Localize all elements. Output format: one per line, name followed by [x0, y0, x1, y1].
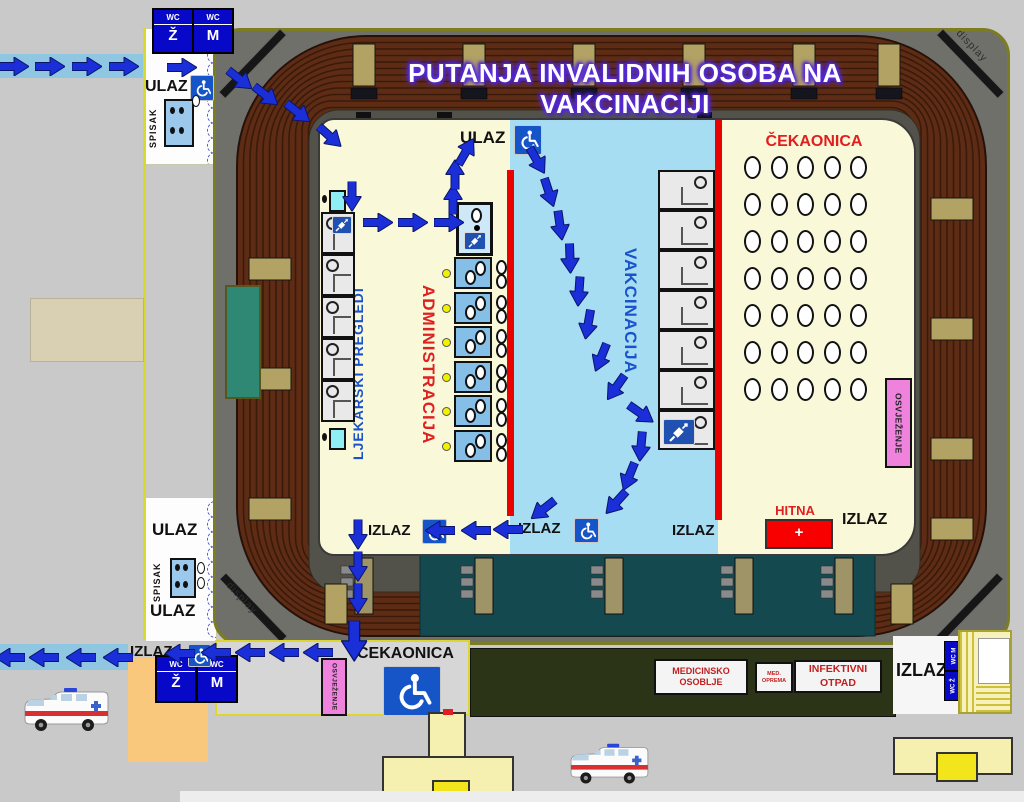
wheelchair-icon: [574, 518, 599, 543]
outside-structure: [30, 298, 144, 362]
wc-letter: Ž: [154, 28, 192, 43]
refreshment-label: OSVJEŽENJE: [331, 663, 338, 711]
wc-text: WC: [194, 14, 232, 25]
wc-text: WC: [951, 654, 957, 664]
waiting-seat: [824, 193, 841, 216]
waiting-seat: [824, 304, 841, 327]
admin-booth: [454, 326, 492, 358]
queue-dot: [442, 407, 451, 416]
visitor-seat: [496, 260, 507, 275]
desk-icon: [681, 187, 708, 205]
waiting-seat: [771, 304, 788, 327]
infectious-waste-box: INFEKTIVNI OTPAD: [794, 660, 882, 693]
wc-men-sign: WC M: [192, 8, 234, 54]
desk-icon: [681, 347, 708, 365]
waiting-room-label: ČEKAONICA: [357, 645, 454, 663]
waiting-seat: [824, 156, 841, 179]
chair-icon: [326, 301, 339, 314]
medical-staff-line2: OSOBLJE: [656, 677, 746, 688]
wc-letter: Ž: [157, 675, 195, 690]
vaccination-booth: [658, 370, 715, 410]
divider-line: [507, 170, 514, 516]
waiting-seat: [824, 341, 841, 364]
seat-oval: [465, 339, 476, 354]
emergency-station: +: [765, 519, 833, 549]
admin-booth: [454, 361, 492, 393]
refreshment-sign: OSVJEŽENJE: [885, 378, 912, 468]
waiting-seat: [744, 341, 761, 364]
administration-label: ADMINISTRACIJA: [418, 285, 438, 475]
wc-letter: M: [951, 648, 957, 653]
desk-icon: [333, 358, 352, 376]
entrance-label: ULAZ: [145, 78, 188, 96]
entry-corridor: [0, 54, 146, 78]
vaccination-booth: [658, 250, 715, 290]
disabled-vaccination-icon: [663, 419, 695, 445]
seat-oval: [197, 562, 205, 574]
wc-letter: M: [198, 675, 236, 690]
vaccination-booth: [658, 410, 715, 450]
waiting-seat: [850, 156, 867, 179]
desk-icon: [681, 227, 708, 245]
waiting-seat: [744, 378, 761, 401]
waiting-seat: [744, 267, 761, 290]
visitor-seat: [496, 274, 507, 289]
seat-oval: [475, 399, 486, 414]
medical-staff-line1: MEDICINSKO: [656, 666, 746, 677]
ambulance-icon: [20, 684, 112, 738]
visitor-seat: [496, 329, 507, 344]
waiting-seat: [850, 341, 867, 364]
equipment-line1: MED.: [757, 671, 791, 678]
exit-label: IZLAZ: [368, 522, 411, 539]
visitor-seat: [496, 309, 507, 324]
chair-icon: [326, 259, 339, 272]
road-strip: [180, 791, 1024, 802]
vaccination-booth: [658, 210, 715, 250]
queue-dot: [442, 338, 451, 347]
vaccination-path-diagram: WC Ž WC M ULAZ SPISAK ULAZ SPISAK ULAZ U…: [0, 0, 1024, 802]
vaccination-label: VAKCINACIJA: [620, 248, 640, 413]
list-label: SPISAK: [152, 556, 162, 602]
seat-oval: [322, 433, 327, 441]
queue-dot: [442, 442, 451, 451]
visitor-seat: [496, 295, 507, 310]
exit-label: IZLAZ: [130, 643, 173, 660]
waiting-seat: [744, 193, 761, 216]
ambulance-icon: [566, 740, 652, 790]
supply-box: [329, 190, 346, 212]
supply-box: [329, 428, 346, 450]
emergency-label: HITNA: [760, 503, 830, 518]
desk-icon: [681, 267, 708, 285]
visitor-seat: [496, 433, 507, 448]
visitor-seat: [496, 343, 507, 358]
vaccination-booth: [658, 290, 715, 330]
waiting-seat: [850, 193, 867, 216]
medical-exam-booth: [321, 296, 355, 338]
exit-label: IZLAZ: [842, 511, 887, 529]
medical-exam-booth: [321, 380, 355, 422]
waiting-seat: [797, 193, 814, 216]
seat-oval: [322, 195, 327, 203]
arena-floor: ULAZ ČEKAONICA LJEKARSKI PREGLEDI ADMINI…: [318, 118, 916, 556]
waiting-seat: [771, 267, 788, 290]
waiting-seat: [744, 230, 761, 253]
wheelchair-icon: [514, 125, 542, 155]
chair-icon: [326, 385, 339, 398]
admin-head-booth: [456, 202, 493, 256]
exit-corridor: [0, 644, 128, 670]
admin-booth: [454, 292, 492, 324]
wc-letter: Ž: [951, 678, 957, 682]
floor-entrance-label: ULAZ: [460, 128, 505, 148]
waiting-seat: [797, 267, 814, 290]
waiting-seat: [771, 230, 788, 253]
seat-oval: [465, 374, 476, 389]
desk-icon: [333, 274, 352, 292]
refreshment-label: OSVJEŽENJE: [894, 393, 904, 454]
divider-line: [715, 120, 722, 520]
vaccination-booth: [658, 330, 715, 370]
seat-oval: [475, 296, 486, 311]
admin-booth: [454, 257, 492, 289]
admin-booth: [454, 430, 492, 462]
waiting-seat: [824, 267, 841, 290]
doctor-icon: [332, 216, 352, 234]
entrance-label: ULAZ: [152, 520, 197, 540]
infectious-waste-label: INFEKTIVNI OTPAD: [796, 663, 880, 689]
waiting-seat: [771, 341, 788, 364]
exit-label: IZLAZ: [896, 660, 947, 681]
seat-oval: [465, 443, 476, 458]
waiting-seat: [744, 304, 761, 327]
waiting-seat: [850, 304, 867, 327]
exit-label: IZLAZ: [518, 520, 561, 537]
list-label: SPISAK: [148, 96, 158, 148]
waiting-seat: [824, 230, 841, 253]
vaccination-icon: [464, 232, 486, 250]
visitor-seat: [496, 412, 507, 427]
seat-oval: [475, 261, 486, 276]
visitor-seat: [496, 378, 507, 393]
waiting-seat: [797, 230, 814, 253]
queue-dot: [442, 269, 451, 278]
desk-icon: [333, 400, 352, 418]
staircase: [958, 630, 1012, 714]
medical-exam-booth: [321, 338, 355, 380]
exit-label: IZLAZ: [672, 522, 715, 539]
visitor-seat: [496, 447, 507, 462]
seat-oval: [197, 577, 205, 589]
equipment-line2: OPREMA: [757, 678, 791, 685]
desk-icon: [681, 307, 708, 325]
seat-oval: [475, 365, 486, 380]
chair-icon: [326, 343, 339, 356]
medical-staff-box: MEDICINSKO OSOBLJE: [654, 659, 748, 695]
seat-oval: [475, 434, 486, 449]
waiting-seat: [797, 378, 814, 401]
desk-icon: [681, 387, 708, 405]
queue-dot: [442, 373, 451, 382]
wc-women-sign: WC Ž: [152, 8, 194, 54]
refreshment-sign: OSVJEŽENJE: [321, 658, 347, 716]
outside-kiosk: [936, 752, 978, 782]
seat-oval: [465, 305, 476, 320]
seat-oval: [475, 330, 486, 345]
waiting-seat: [797, 156, 814, 179]
waiting-seat: [797, 341, 814, 364]
cross-icon: +: [795, 524, 804, 541]
medical-exam-booth: [321, 212, 355, 254]
wc-letter: M: [194, 28, 232, 43]
wc-text: WC: [951, 684, 957, 694]
waiting-seat: [744, 156, 761, 179]
waiting-seat: [771, 378, 788, 401]
registration-desk-icon: [170, 558, 196, 598]
admin-booth: [454, 395, 492, 427]
waiting-seat: [850, 230, 867, 253]
waiting-seat: [797, 304, 814, 327]
waiting-seat: [850, 267, 867, 290]
waiting-seat: [771, 193, 788, 216]
waiting-room-label: ČEKAONICA: [734, 133, 894, 151]
wheelchair-icon: [188, 644, 211, 667]
waiting-seat: [850, 378, 867, 401]
vaccination-booth: [658, 170, 715, 210]
seat-oval: [465, 408, 476, 423]
wheelchair-icon: [422, 519, 447, 544]
medical-exam-booth: [321, 254, 355, 296]
waiting-seat: [824, 378, 841, 401]
outside-structure: [428, 712, 466, 760]
wheelchair-icon-large: [383, 666, 441, 716]
entrance-label: ULAZ: [150, 601, 195, 621]
desk-icon: [333, 316, 352, 334]
page-title: PUTANJA INVALIDNIH OSOBA NA VAKCINACIJI: [320, 58, 930, 120]
seat-oval: [192, 95, 200, 107]
visitor-seat: [496, 398, 507, 413]
registration-desk-icon: [164, 99, 194, 147]
visitor-seat: [496, 364, 507, 379]
door-marker: [443, 709, 453, 715]
waiting-seat: [771, 156, 788, 179]
queue-dot: [442, 304, 451, 313]
medical-equipment-box: MED. OPREMA: [755, 662, 793, 693]
seat-oval: [465, 270, 476, 285]
wc-text: WC: [154, 14, 192, 25]
